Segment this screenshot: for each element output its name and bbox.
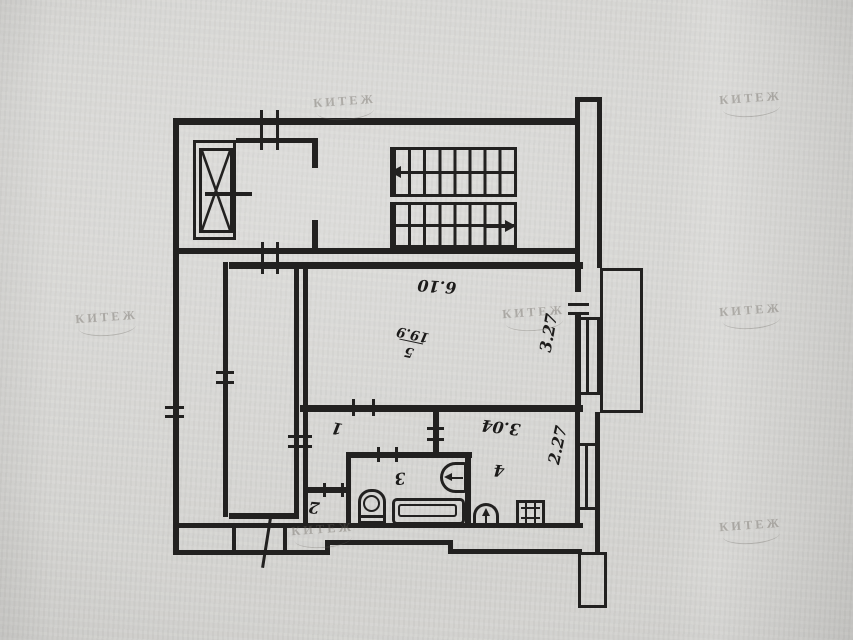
bathtub-inner <box>398 504 457 517</box>
door-break-icon <box>427 427 444 430</box>
window-icon <box>575 392 600 395</box>
wall <box>179 248 576 254</box>
watermark-text: КИТЕЖ <box>719 516 783 534</box>
door-break-icon <box>395 447 398 462</box>
wall <box>173 118 577 125</box>
room-4-label: 4 <box>488 461 509 478</box>
window-icon <box>586 317 589 395</box>
wall <box>300 405 583 412</box>
watermark-flourish <box>722 105 781 119</box>
door-break-icon <box>216 371 234 374</box>
door-break-icon <box>276 110 279 150</box>
room-3-label: 3 <box>389 469 411 487</box>
stair-arrow-line <box>485 225 506 228</box>
room-2-label: 2 <box>303 498 324 516</box>
dimension-kitchen-width: 3.04 <box>473 416 529 438</box>
floor-plan-photo: 1 2 3 4 5 19.9 6.10 3.27 3.04 2.27 КИТЕЖ… <box>0 0 853 640</box>
wall <box>223 262 228 517</box>
wall <box>232 525 236 553</box>
wall <box>575 262 581 292</box>
wall <box>597 97 602 268</box>
wall <box>294 262 299 517</box>
arrow-up-icon <box>482 508 490 516</box>
wall <box>229 262 583 269</box>
window-icon <box>575 507 600 510</box>
wall <box>312 220 318 254</box>
watermark-flourish <box>78 324 137 338</box>
balcony <box>600 268 643 413</box>
stair-arrow-line <box>399 171 420 174</box>
room-1-label: 1 <box>326 418 348 437</box>
door-break-icon <box>260 110 263 150</box>
wall <box>312 138 318 168</box>
bathtub-icon <box>392 498 465 525</box>
arrow-left-icon <box>444 473 452 481</box>
elevator-x-icon <box>202 151 230 230</box>
watermark-text: КИТЕЖ <box>313 92 377 110</box>
dimension-room5-width: 6.10 <box>410 276 465 296</box>
door-break-icon <box>323 483 326 497</box>
wall <box>348 452 472 458</box>
toilet-bowl-icon <box>363 495 380 512</box>
door-break-icon <box>427 438 444 441</box>
watermark-text: КИТЕЖ <box>719 89 783 107</box>
door-break-icon <box>288 435 312 438</box>
door-break-icon <box>216 381 234 384</box>
kitchen-sink-icon <box>473 503 499 526</box>
watermark-text: КИТЕЖ <box>502 303 566 321</box>
wall <box>448 549 582 554</box>
window-icon <box>585 445 588 510</box>
toilet-base-line <box>361 515 383 518</box>
wall <box>575 97 580 268</box>
dimension-kitchen-depth: 2.27 <box>545 417 572 473</box>
door-break-icon <box>165 406 184 409</box>
elevator-cab-icon <box>199 148 233 233</box>
vent-shaft <box>578 552 607 608</box>
watermark: КИТЕЖ <box>274 519 372 552</box>
watermark-flourish <box>722 317 781 331</box>
door-break-icon <box>372 399 375 416</box>
wall <box>173 118 179 555</box>
stove-icon <box>516 500 545 527</box>
watermark: КИТЕЖ <box>485 302 583 335</box>
watermark-text: КИТЕЖ <box>291 520 355 538</box>
watermark: КИТЕЖ <box>702 515 800 548</box>
watermark: КИТЕЖ <box>58 307 156 340</box>
door-break-icon <box>261 242 264 274</box>
watermark: КИТЕЖ <box>702 88 800 121</box>
elevator-door-mark-icon <box>205 192 252 196</box>
watermark-flourish <box>294 536 353 550</box>
wall <box>575 315 581 412</box>
watermark-flourish <box>722 532 781 546</box>
arrow-left-icon <box>390 166 401 178</box>
room-5-label: 5 19.9 <box>385 322 437 364</box>
watermark-text: КИТЕЖ <box>75 308 139 326</box>
stove-burner-tick <box>530 517 540 519</box>
watermark-text: КИТЕЖ <box>719 301 783 319</box>
door-break-icon <box>165 415 184 418</box>
wall <box>229 513 299 519</box>
wall <box>173 550 328 555</box>
washbasin-icon <box>440 462 467 493</box>
watermark: КИТЕЖ <box>702 300 800 333</box>
stove-burner-tick <box>530 507 540 509</box>
arrow-right-icon <box>505 220 516 232</box>
door-break-icon <box>276 242 279 274</box>
door-break-icon <box>352 399 355 416</box>
door-break-icon <box>341 483 344 497</box>
door-break-icon <box>377 447 380 462</box>
wall <box>595 412 600 552</box>
door-break-icon <box>288 445 312 448</box>
